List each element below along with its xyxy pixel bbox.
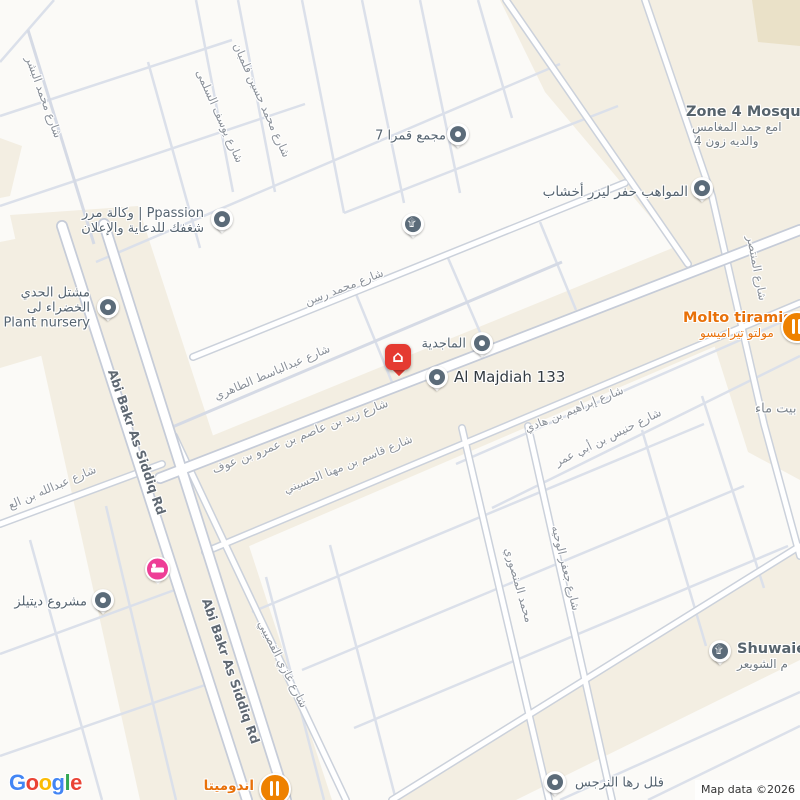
google-logo[interactable]: Google	[9, 770, 82, 796]
poi-pin-narjis[interactable]	[544, 771, 566, 799]
poi-pin-majdia[interactable]	[471, 332, 493, 360]
poi-pin-mosque[interactable]	[402, 213, 424, 241]
mosque-icon	[709, 640, 731, 662]
map-canvas[interactable]: شارع محمد البشر شارع يوسف السلمى شارع مح…	[0, 0, 800, 800]
logo-letter: e	[70, 770, 82, 795]
poi-dot-icon	[426, 366, 448, 388]
logo-letter: o	[26, 770, 39, 795]
logo-letter: o	[39, 770, 52, 795]
poi-pin-plant-nursery[interactable]	[97, 296, 119, 324]
poi-dot-icon	[447, 123, 469, 145]
property-marker[interactable]: ⌂	[385, 344, 413, 378]
map-base-layer	[0, 0, 800, 800]
poi-dot-icon	[544, 771, 566, 793]
mosque-icon	[402, 213, 424, 235]
poi-dot-icon	[97, 296, 119, 318]
poi-dot-icon	[211, 208, 233, 230]
restaurant-icon-indomita[interactable]	[259, 773, 291, 800]
poi-pin-ppassion[interactable]	[211, 208, 233, 236]
house-icon: ⌂	[385, 344, 411, 370]
bed-icon	[145, 557, 170, 582]
poi-pin-almajdiah133[interactable]	[426, 366, 448, 394]
poi-pin-mawahib[interactable]	[691, 177, 713, 205]
poi-pin-qamra[interactable]	[447, 123, 469, 151]
map-attribution: Map data ©2026	[695, 780, 800, 800]
poi-dot-icon	[92, 589, 114, 611]
poi-pin-shuwaier-mosque[interactable]	[709, 640, 731, 668]
poi-dot-icon	[691, 177, 713, 199]
logo-letter: G	[9, 770, 26, 795]
logo-letter: g	[52, 770, 65, 795]
poi-dot-icon	[471, 332, 493, 354]
hotel-pin[interactable]	[145, 557, 171, 589]
zone-tan-block	[752, 0, 800, 46]
poi-pin-details[interactable]	[92, 589, 114, 617]
